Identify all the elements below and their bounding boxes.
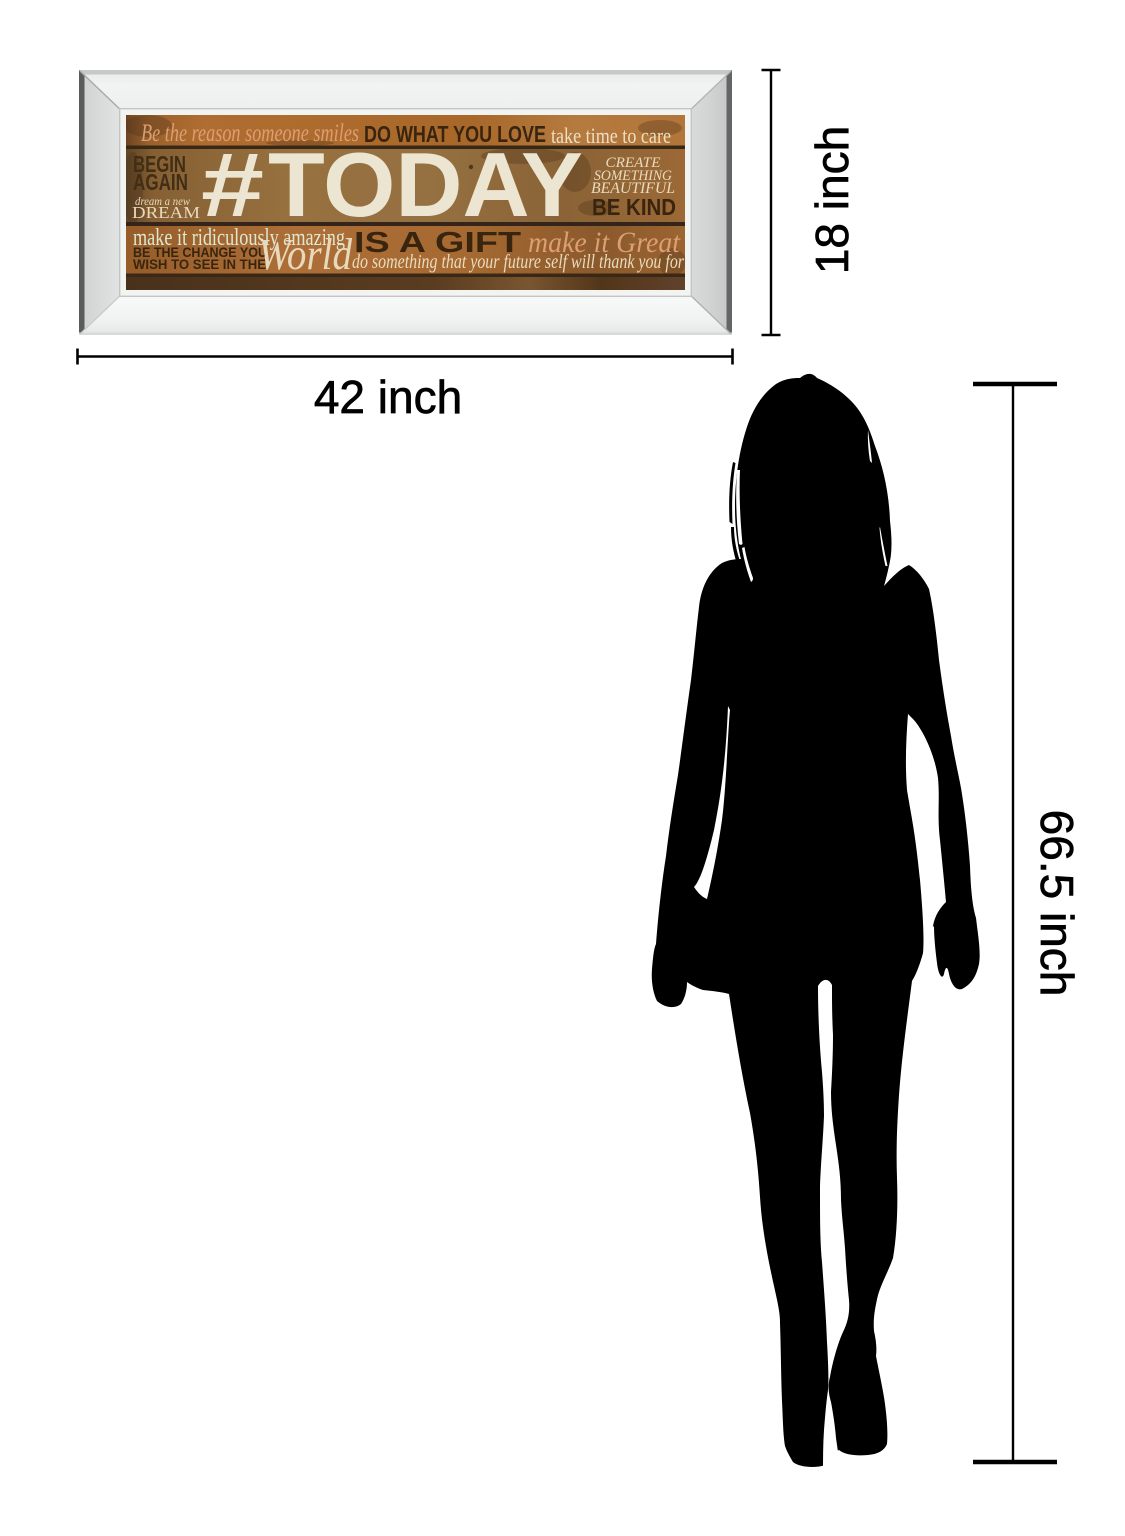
svg-text:World: World	[258, 230, 353, 279]
svg-text:TODAY: TODAY	[268, 135, 583, 236]
svg-text:AGAIN: AGAIN	[133, 169, 188, 195]
svg-text:18 inch: 18 inch	[806, 126, 858, 274]
svg-text:DREAM: DREAM	[132, 203, 200, 222]
svg-text:66.5 inch: 66.5 inch	[1031, 810, 1083, 997]
svg-text:do something that your future: do something that your future self will …	[352, 251, 684, 273]
svg-text:WISH TO SEE IN THE: WISH TO SEE IN THE	[133, 257, 266, 272]
svg-text:42 inch: 42 inch	[314, 371, 462, 423]
svg-text:#: #	[201, 135, 264, 236]
svg-text:BE KIND: BE KIND	[592, 194, 676, 220]
